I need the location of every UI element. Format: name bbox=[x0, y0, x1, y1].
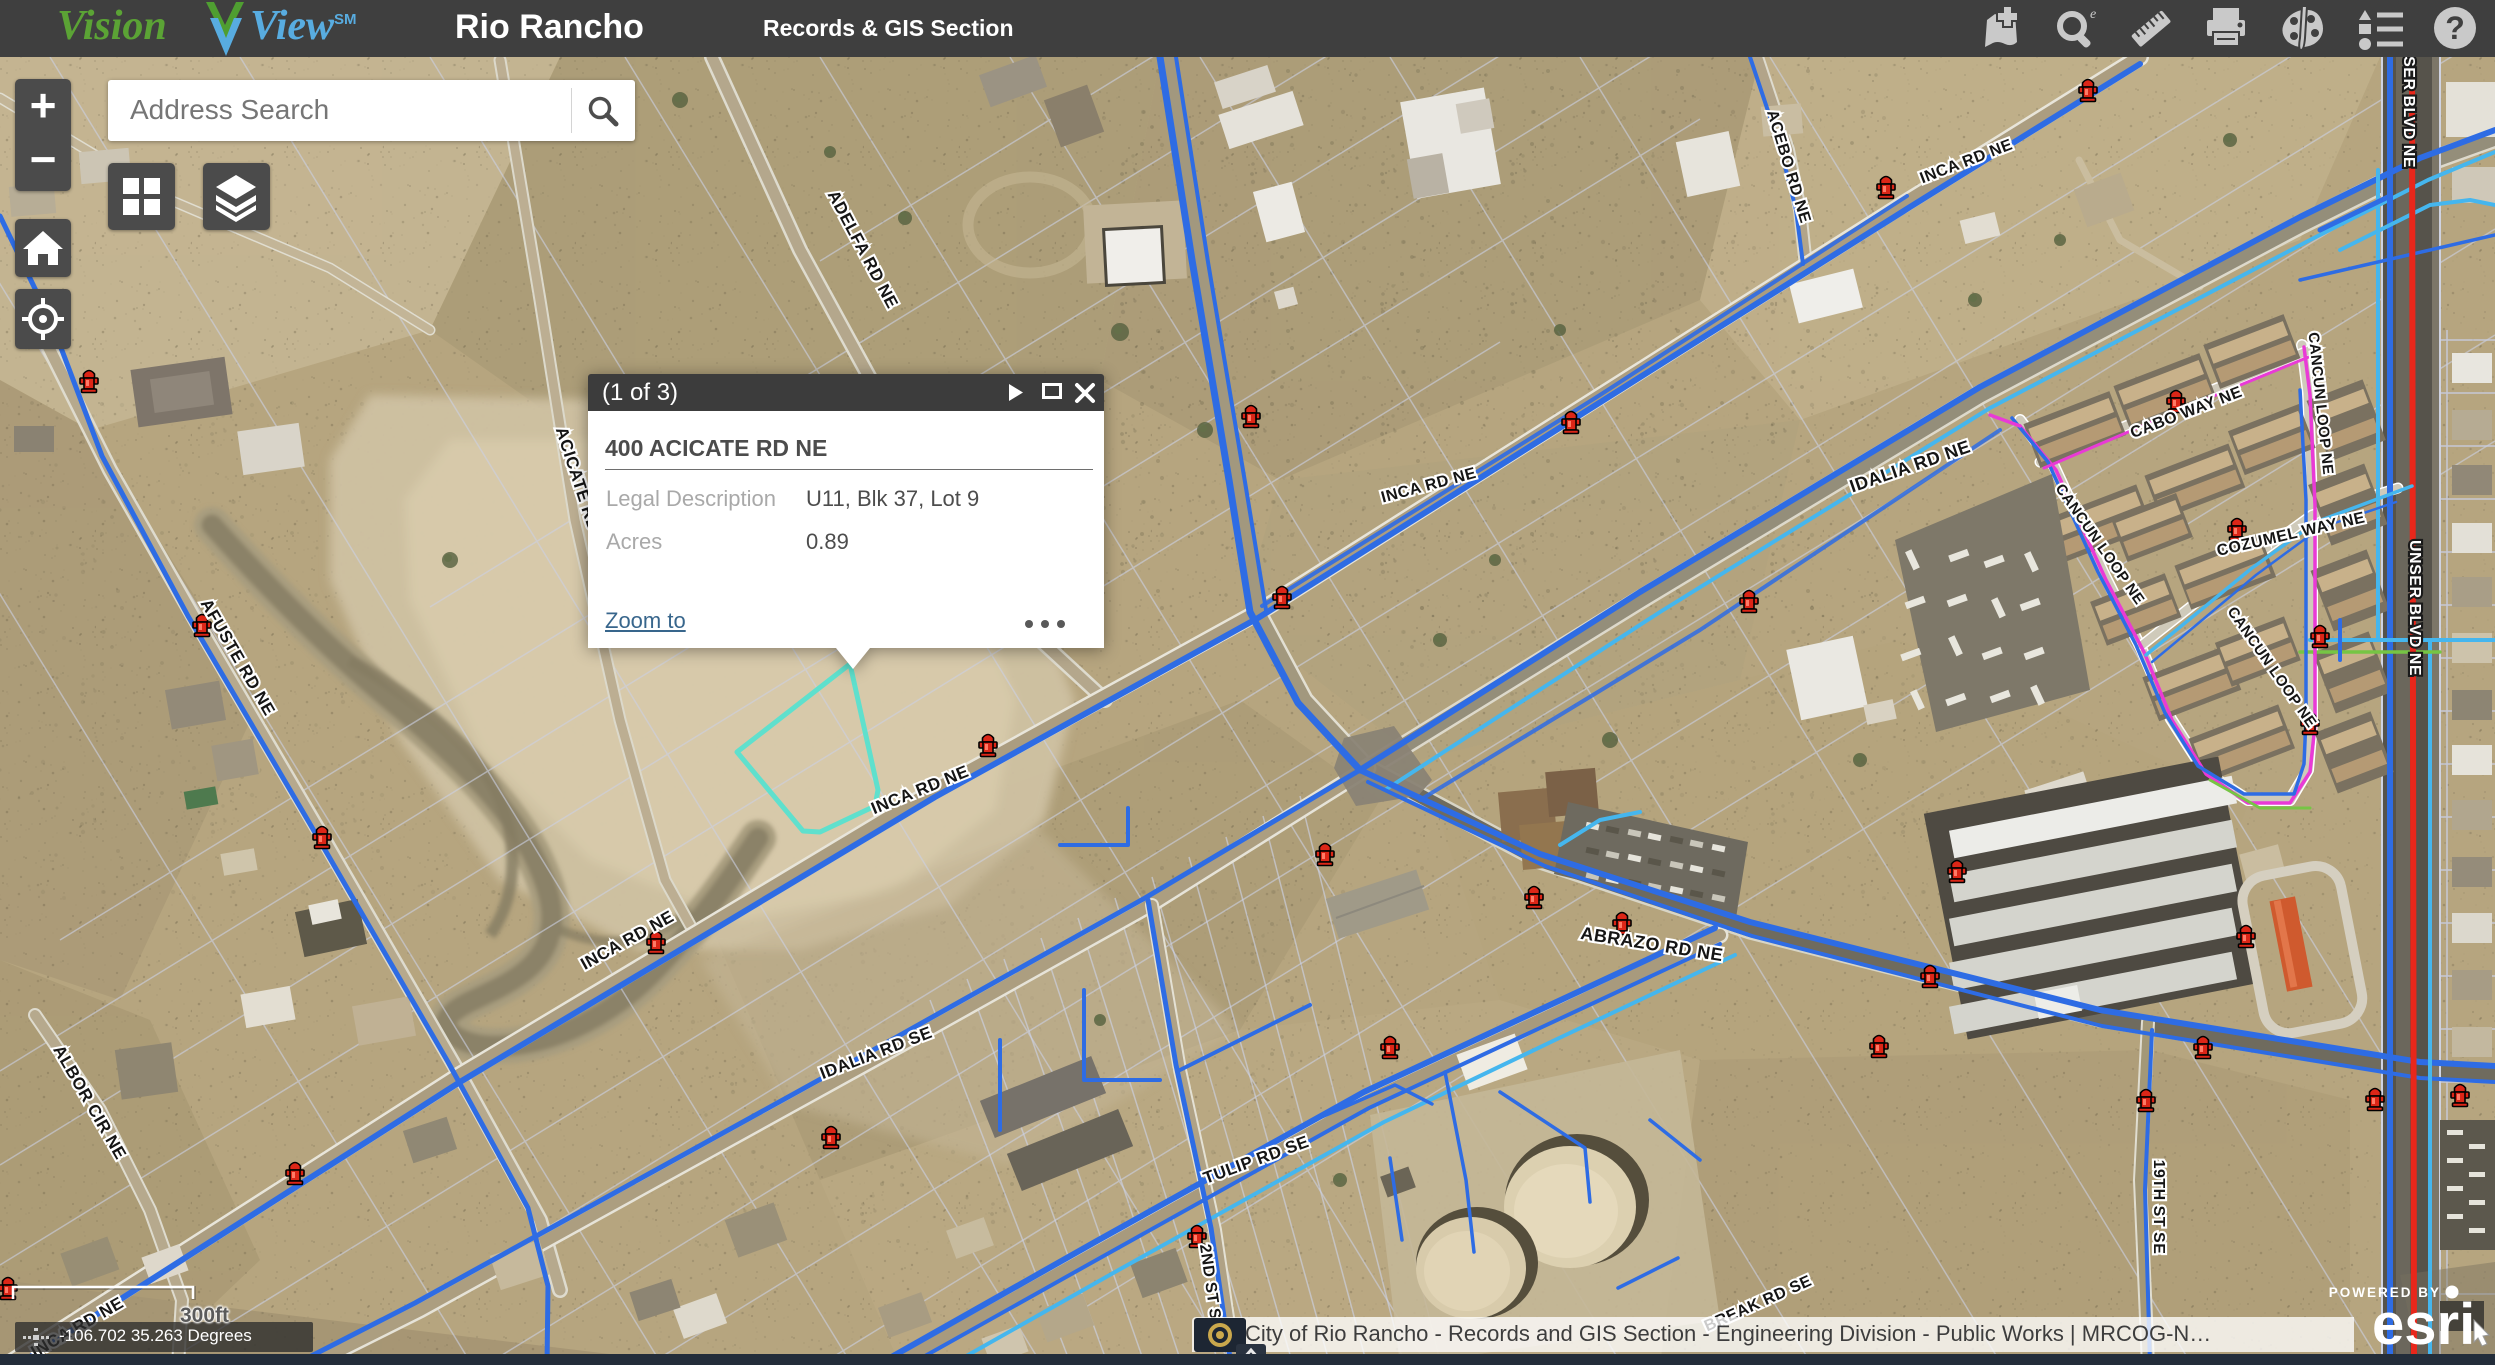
svg-text:esri: esri bbox=[2372, 1292, 2475, 1357]
svg-text:e: e bbox=[2090, 7, 2096, 22]
svg-text:UNSER BLVD NE: UNSER BLVD NE bbox=[2406, 540, 2423, 676]
svg-text:?: ? bbox=[2445, 10, 2465, 46]
svg-text:19TH ST SE: 19TH ST SE bbox=[2150, 1160, 2167, 1255]
